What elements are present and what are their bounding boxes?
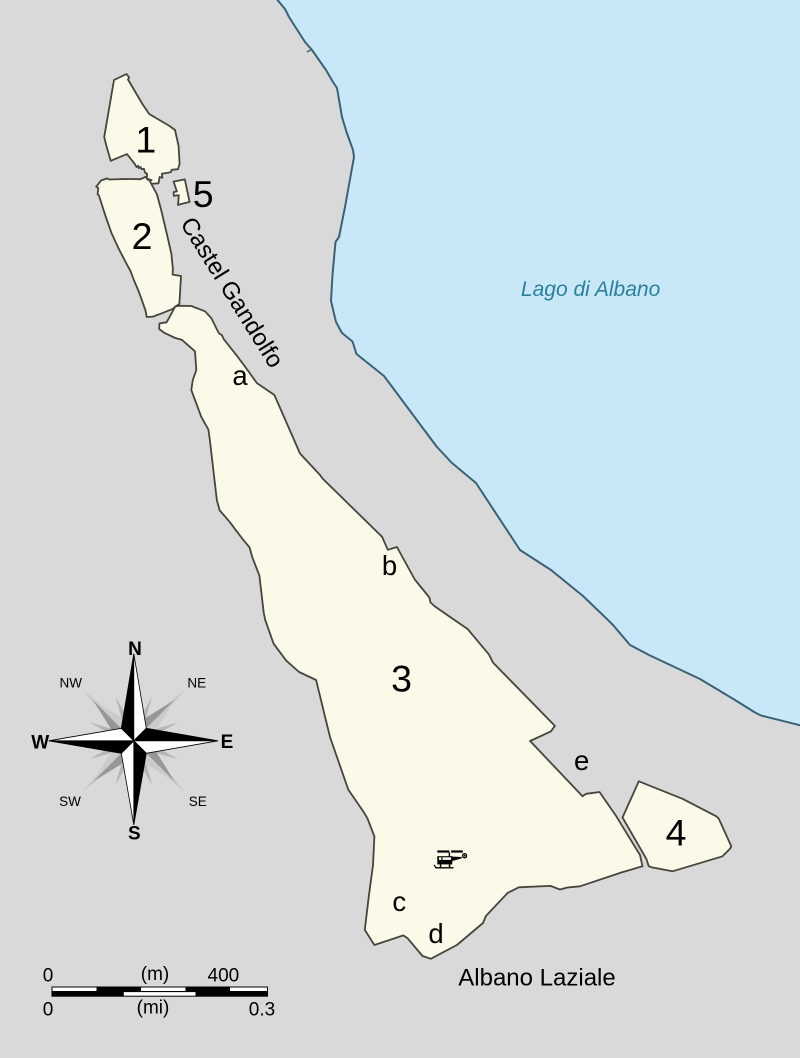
svg-text:3: 3 xyxy=(391,658,412,700)
svg-text:Lago di Albano: Lago di Albano xyxy=(521,278,661,301)
svg-text:SE: SE xyxy=(189,794,207,809)
svg-text:(m): (m) xyxy=(141,964,169,985)
svg-text:Albano Laziale: Albano Laziale xyxy=(458,965,615,992)
svg-text:0: 0 xyxy=(43,966,54,987)
svg-text:400: 400 xyxy=(208,966,240,987)
svg-text:d: d xyxy=(428,918,443,949)
svg-text:N: N xyxy=(128,639,142,660)
svg-text:NW: NW xyxy=(60,676,83,691)
svg-text:(mi): (mi) xyxy=(137,998,170,1019)
svg-text:W: W xyxy=(31,733,49,754)
svg-text:NE: NE xyxy=(187,676,206,691)
svg-text:0.3: 0.3 xyxy=(249,1000,275,1021)
svg-text:2: 2 xyxy=(132,215,153,257)
svg-text:S: S xyxy=(128,824,141,845)
svg-text:0: 0 xyxy=(43,1000,54,1021)
svg-text:E: E xyxy=(221,732,234,753)
svg-text:a: a xyxy=(232,360,248,391)
svg-text:e: e xyxy=(574,745,589,776)
svg-text:1: 1 xyxy=(135,118,156,160)
svg-text:5: 5 xyxy=(193,173,214,215)
svg-text:b: b xyxy=(382,550,397,581)
svg-text:SW: SW xyxy=(59,794,81,809)
svg-text:4: 4 xyxy=(666,812,687,854)
svg-text:c: c xyxy=(392,886,406,917)
